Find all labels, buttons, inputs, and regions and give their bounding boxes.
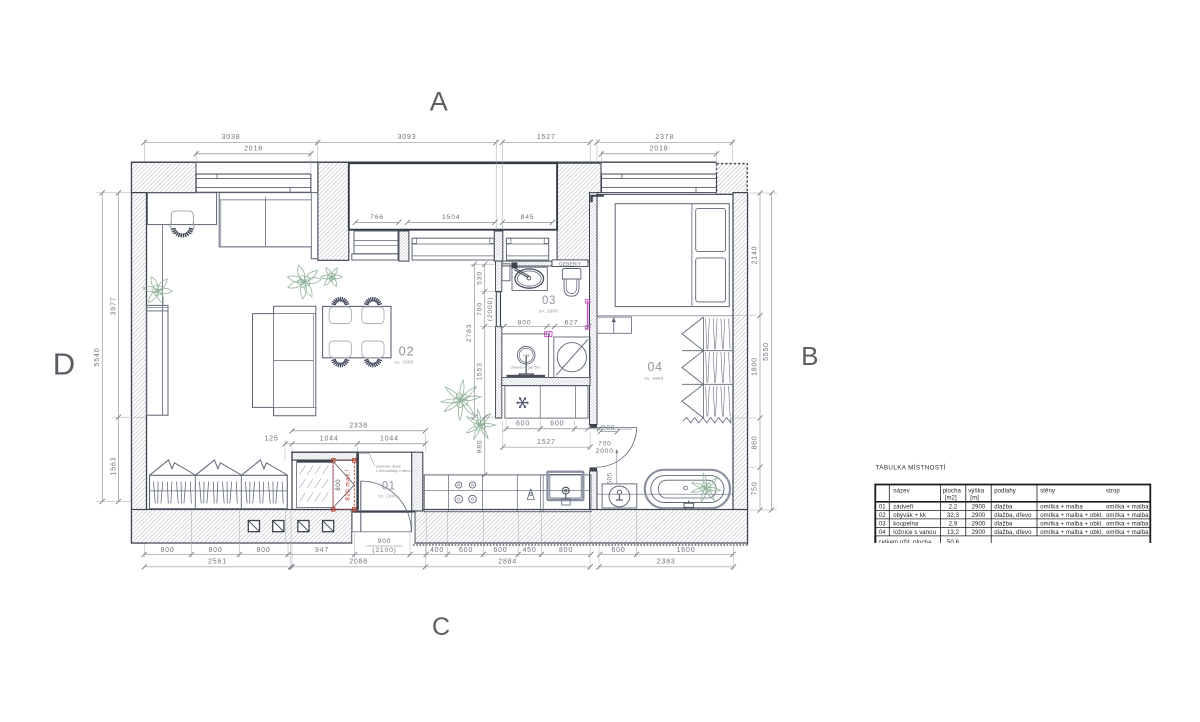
svg-text:omítka + malba: omítka + malba xyxy=(1106,513,1149,519)
svg-text:980: 980 xyxy=(476,440,483,454)
svg-text:627: 627 xyxy=(565,320,579,327)
svg-text:820 max.!: 820 max.! xyxy=(345,469,352,501)
svg-text:dlažba: dlažba xyxy=(994,504,1013,510)
svg-text:3977: 3977 xyxy=(110,297,117,316)
svg-text:800: 800 xyxy=(559,547,573,554)
svg-text:sv. 2900: sv. 2900 xyxy=(644,376,663,381)
svg-text:2140: 2140 xyxy=(752,246,759,265)
svg-text:strop: strop xyxy=(1106,488,1120,494)
svg-text:5550: 5550 xyxy=(763,342,770,361)
svg-text:766: 766 xyxy=(370,214,384,221)
svg-text:900: 900 xyxy=(378,538,392,545)
svg-text:zádveří: zádveří xyxy=(893,504,914,510)
svg-text:1553: 1553 xyxy=(476,362,483,380)
svg-text:(2100): (2100) xyxy=(372,547,396,554)
svg-text:600: 600 xyxy=(611,547,625,554)
svg-text:sv. 2900: sv. 2900 xyxy=(378,494,397,499)
svg-text:04: 04 xyxy=(879,530,886,536)
svg-text:2900: 2900 xyxy=(972,513,986,519)
svg-text:dlažba, dřevo: dlažba, dřevo xyxy=(994,513,1032,519)
svg-text:2,2: 2,2 xyxy=(949,504,958,510)
svg-text:D: D xyxy=(53,347,75,382)
svg-text:2900: 2900 xyxy=(972,504,986,510)
svg-text:ložnice s vanou: ložnice s vanou xyxy=(893,530,936,536)
svg-text:omítka + malba: omítka + malba xyxy=(1106,504,1149,510)
svg-text:dlažba, dřevo: dlažba, dřevo xyxy=(994,530,1032,536)
svg-text:2016: 2016 xyxy=(244,146,263,153)
svg-text:posuvné dveře: posuvné dveře xyxy=(376,464,401,468)
svg-text:1800: 1800 xyxy=(752,357,759,376)
svg-text:stěny: stěny xyxy=(1040,488,1055,494)
svg-text:2018: 2018 xyxy=(650,146,669,153)
svg-text:530: 530 xyxy=(476,271,483,285)
svg-text:400: 400 xyxy=(430,547,444,554)
svg-text:700: 700 xyxy=(476,302,483,316)
svg-text:1600: 1600 xyxy=(677,547,696,554)
svg-text:2383: 2383 xyxy=(657,559,676,566)
svg-text:výška: výška xyxy=(968,488,984,494)
svg-text:450: 450 xyxy=(522,547,536,554)
svg-text:600: 600 xyxy=(550,421,564,428)
svg-text:(2000): (2000) xyxy=(487,297,494,321)
svg-text:2783: 2783 xyxy=(466,324,473,342)
svg-text:omítka + malba + obkl.: omítka + malba + obkl. xyxy=(1040,521,1103,527)
svg-text:sv. 2900: sv. 2900 xyxy=(539,309,558,314)
svg-text:2338: 2338 xyxy=(349,423,368,430)
svg-text:2378: 2378 xyxy=(655,134,674,141)
svg-text:omítka + malba: omítka + malba xyxy=(1106,530,1149,536)
svg-text:800: 800 xyxy=(256,547,270,554)
svg-text:800: 800 xyxy=(160,547,174,554)
svg-text:03: 03 xyxy=(542,295,556,307)
svg-text:dlažba: dlažba xyxy=(994,521,1013,527)
svg-text:plocha: plocha xyxy=(943,488,962,494)
svg-text:5540: 5540 xyxy=(94,348,101,367)
svg-text:[m]: [m] xyxy=(970,495,979,501)
svg-text:1563: 1563 xyxy=(110,457,117,476)
svg-text:1044: 1044 xyxy=(380,436,399,443)
svg-text:800: 800 xyxy=(335,479,342,491)
svg-text:860: 860 xyxy=(752,435,759,449)
svg-text:1044: 1044 xyxy=(320,436,339,443)
svg-text:605: 605 xyxy=(607,473,614,485)
svg-text:600: 600 xyxy=(493,547,507,554)
svg-text:omítka + malba + obkl.: omítka + malba + obkl. xyxy=(1040,530,1103,536)
svg-text:podlahy: podlahy xyxy=(994,488,1016,494)
svg-text:1527: 1527 xyxy=(537,439,556,446)
svg-text:125: 125 xyxy=(264,436,278,443)
svg-text:omítka + malba + obkl.: omítka + malba + obkl. xyxy=(1040,513,1103,519)
svg-text:02: 02 xyxy=(879,513,886,519)
svg-text:200: 200 xyxy=(602,425,616,432)
svg-text:2900: 2900 xyxy=(972,521,986,527)
svg-text:omítka + malba: omítka + malba xyxy=(1106,521,1149,527)
svg-text:1504: 1504 xyxy=(442,214,460,221)
svg-text:2561: 2561 xyxy=(208,559,227,566)
svg-text:32,3: 32,3 xyxy=(947,513,960,519)
svg-text:2884: 2884 xyxy=(498,559,517,566)
svg-text:700: 700 xyxy=(598,441,612,448)
svg-text:2,9: 2,9 xyxy=(949,521,958,527)
svg-text:947: 947 xyxy=(315,547,329,554)
svg-text:750: 750 xyxy=(752,481,759,495)
svg-text:2900: 2900 xyxy=(972,530,986,536)
svg-text:obkladový pás 600: obkladový pás 600 xyxy=(511,366,541,370)
svg-text:koupelna: koupelna xyxy=(893,521,919,527)
svg-text:2000: 2000 xyxy=(596,448,614,455)
svg-text:TABULKA MÍSTNOSTÍ: TABULKA MÍSTNOSTÍ xyxy=(876,462,946,471)
svg-text:název: název xyxy=(893,488,910,494)
svg-text:03: 03 xyxy=(879,521,886,527)
svg-text:B: B xyxy=(801,341,818,371)
svg-text:01: 01 xyxy=(879,504,886,510)
svg-text:13,2: 13,2 xyxy=(947,530,960,536)
svg-text:sv. 2900: sv. 2900 xyxy=(394,360,413,365)
svg-text:obývák + kk: obývák + kk xyxy=(893,513,927,519)
svg-text:A: A xyxy=(430,87,448,117)
svg-text:04: 04 xyxy=(647,360,662,374)
svg-text:1527: 1527 xyxy=(537,134,556,141)
svg-text:800: 800 xyxy=(208,547,222,554)
svg-text:GEBERIT: GEBERIT xyxy=(559,261,581,266)
svg-text:2088: 2088 xyxy=(349,559,368,566)
svg-text:3093: 3093 xyxy=(398,134,417,141)
svg-text:845: 845 xyxy=(521,214,535,221)
svg-text:omítka + malba: omítka + malba xyxy=(1040,504,1083,510)
svg-text:[m2]: [m2] xyxy=(945,495,957,501)
svg-text:01: 01 xyxy=(382,481,396,493)
svg-text:800: 800 xyxy=(518,320,532,327)
svg-text:600: 600 xyxy=(516,421,530,428)
svg-text:600: 600 xyxy=(459,547,473,554)
svg-text:02: 02 xyxy=(399,344,415,359)
svg-text:C: C xyxy=(432,613,450,641)
svg-text:z dřevotřísky v rámu: z dřevotřísky v rámu xyxy=(376,469,410,473)
svg-text:3038: 3038 xyxy=(222,134,241,141)
